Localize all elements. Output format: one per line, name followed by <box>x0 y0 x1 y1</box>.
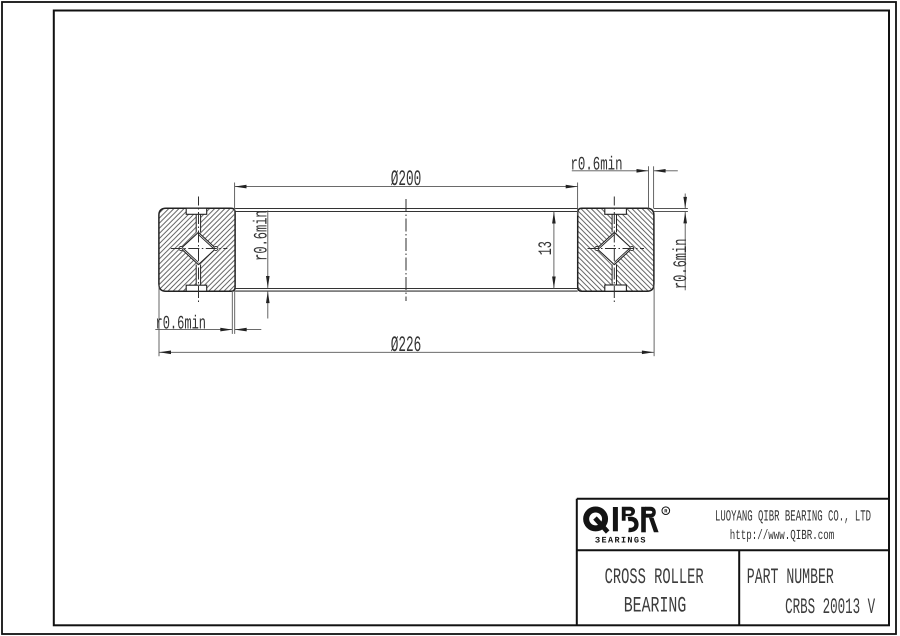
svg-text:CROSS ROLLER: CROSS ROLLER <box>605 565 704 590</box>
svg-text:BEARING: BEARING <box>624 593 687 618</box>
svg-text:r0.6min: r0.6min <box>670 239 692 290</box>
svg-text:http://www.QIBR.com: http://www.QIBR.com <box>730 529 835 544</box>
svg-text:r0.6min: r0.6min <box>251 210 273 261</box>
svg-text:CRBS 20013 V: CRBS 20013 V <box>785 595 875 620</box>
svg-text:Ø226: Ø226 <box>391 333 422 358</box>
svg-text:r0.6min: r0.6min <box>571 154 623 176</box>
svg-text:13: 13 <box>535 241 557 255</box>
svg-text:Ø200: Ø200 <box>391 167 422 192</box>
svg-text:r0.6min: r0.6min <box>156 312 207 334</box>
svg-text:ЗEARINGS: ЗEARINGS <box>595 536 646 546</box>
svg-text:PART NUMBER: PART NUMBER <box>747 565 834 590</box>
svg-text:LUOYANG QIBR BEARING CO., LTD: LUOYANG QIBR BEARING CO., LTD <box>715 507 871 525</box>
